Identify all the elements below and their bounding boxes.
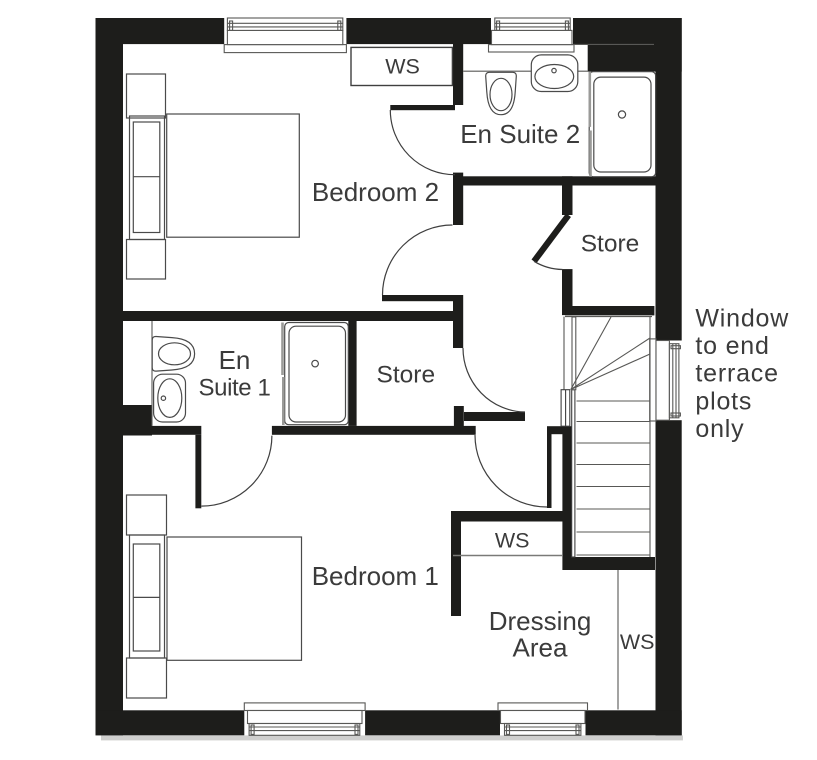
svg-text:plots: plots	[695, 387, 752, 415]
svg-text:Store: Store	[377, 362, 436, 389]
svg-text:Suite 1: Suite 1	[199, 374, 271, 401]
svg-text:Window: Window	[695, 305, 789, 333]
svg-text:Bedroom 2: Bedroom 2	[312, 177, 439, 207]
svg-text:Dressing: Dressing	[489, 606, 592, 636]
svg-text:Bedroom 1: Bedroom 1	[312, 561, 439, 591]
svg-text:En Suite 2: En Suite 2	[460, 119, 580, 149]
svg-text:En: En	[219, 345, 251, 375]
svg-text:Area: Area	[513, 633, 568, 663]
svg-text:terrace: terrace	[695, 360, 778, 388]
svg-text:WS: WS	[385, 55, 420, 79]
svg-text:only: only	[695, 415, 744, 443]
svg-text:Store: Store	[581, 230, 640, 257]
svg-text:WS: WS	[495, 529, 530, 553]
svg-text:to end: to end	[695, 332, 769, 360]
svg-text:WS: WS	[620, 630, 655, 654]
